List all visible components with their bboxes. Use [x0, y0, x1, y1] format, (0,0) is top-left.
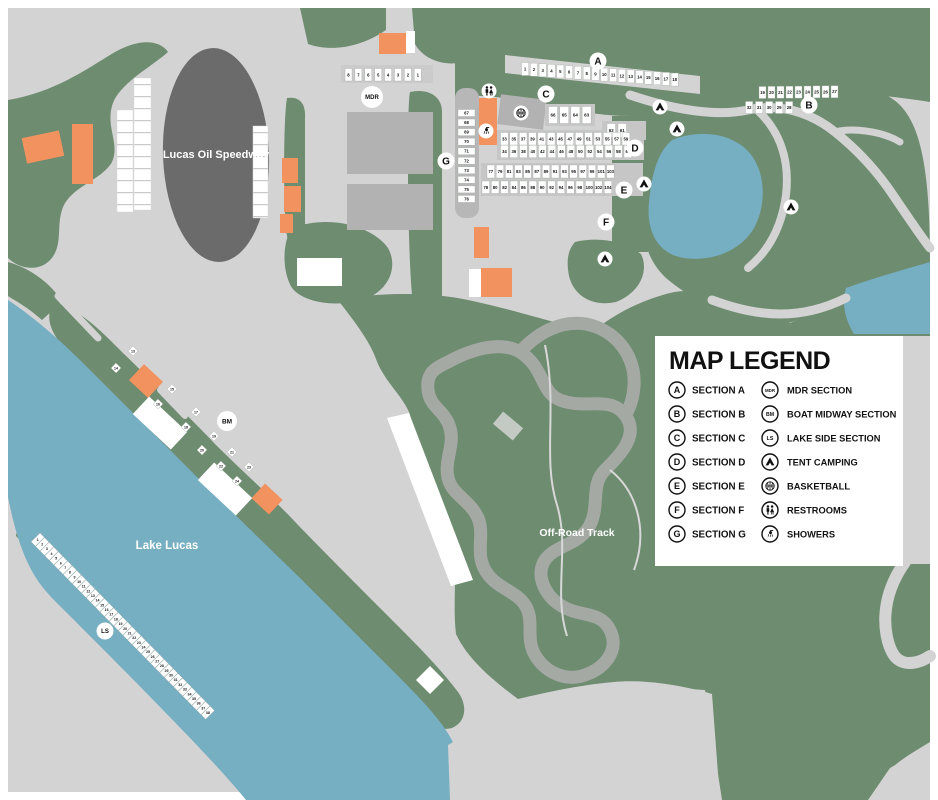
- svg-text:29: 29: [164, 669, 168, 673]
- svg-text:97: 97: [580, 169, 585, 174]
- building-orange-east-1: [282, 158, 298, 183]
- svg-text:19: 19: [760, 90, 765, 95]
- svg-text:24: 24: [805, 90, 810, 95]
- svg-text:7: 7: [64, 566, 66, 570]
- svg-text:4: 4: [51, 552, 53, 556]
- campground-map: 1234567891011121314151617188765432119202…: [0, 0, 938, 800]
- svg-text:13: 13: [131, 349, 135, 353]
- svg-text:13: 13: [628, 74, 633, 79]
- svg-text:50: 50: [578, 149, 583, 154]
- legend-label-restrooms: RESTROOMS: [787, 506, 847, 516]
- legend-label-mdr-section: MDR SECTION: [787, 386, 852, 396]
- map-showers-icon: [479, 124, 494, 139]
- svg-text:17: 17: [664, 76, 669, 81]
- legend-badge-c: C: [674, 433, 681, 443]
- svg-text:64: 64: [573, 113, 579, 118]
- svg-text:12: 12: [86, 589, 90, 593]
- map-tent-icon: [598, 252, 613, 267]
- svg-text:85: 85: [525, 169, 530, 174]
- svg-text:33: 33: [502, 136, 507, 141]
- lot-row-section-b-south: 3231302928: [746, 102, 793, 114]
- svg-text:5: 5: [55, 557, 57, 561]
- svg-text:23: 23: [796, 90, 801, 95]
- svg-text:102: 102: [595, 185, 603, 190]
- svg-text:26: 26: [823, 89, 828, 94]
- svg-text:41: 41: [539, 136, 544, 141]
- svg-text:53: 53: [596, 136, 601, 141]
- building-white-south: [469, 269, 481, 297]
- svg-text:74: 74: [464, 177, 469, 182]
- section-badge-d: D: [627, 140, 644, 157]
- building-gray-mdr-lot-2: [347, 184, 433, 230]
- svg-text:14: 14: [114, 366, 118, 370]
- svg-text:30: 30: [169, 674, 173, 678]
- svg-text:25: 25: [146, 650, 150, 654]
- legend-badge-e: E: [674, 481, 680, 491]
- legend-badge-ls: LS: [767, 436, 774, 442]
- svg-text:103: 103: [607, 169, 615, 174]
- svg-text:56: 56: [607, 149, 612, 154]
- svg-text:98: 98: [577, 185, 582, 190]
- legend-label-tent-camping: TENT CAMPING: [787, 458, 858, 468]
- svg-text:75: 75: [464, 187, 469, 192]
- svg-text:43: 43: [549, 136, 554, 141]
- legend-label-lake-side-section: LAKE SIDE SECTION: [787, 434, 881, 444]
- svg-text:29: 29: [777, 105, 782, 110]
- svg-text:14: 14: [95, 599, 99, 603]
- svg-text:20: 20: [200, 448, 204, 452]
- building-orange-east-2: [284, 186, 301, 212]
- svg-text:68: 68: [464, 120, 469, 125]
- map-legend: MAP LEGEND A SECTION A B SECTION B C SEC…: [655, 336, 903, 566]
- map-tent-icon: [653, 100, 668, 115]
- svg-text:24: 24: [141, 646, 145, 650]
- legend-label-section-b: SECTION B: [692, 410, 745, 421]
- map-restrooms-icon: [482, 84, 497, 99]
- svg-text:12: 12: [620, 73, 625, 78]
- svg-text:19: 19: [118, 622, 122, 626]
- svg-text:15: 15: [646, 75, 651, 80]
- svg-text:94: 94: [559, 185, 564, 190]
- legend-badge-bm: BM: [766, 412, 774, 418]
- svg-text:73: 73: [464, 168, 469, 173]
- svg-text:71: 71: [464, 149, 469, 154]
- svg-text:19: 19: [212, 434, 216, 438]
- svg-text:27: 27: [155, 660, 159, 664]
- speedway-label: Lucas Oil Speedway: [163, 149, 270, 161]
- svg-text:15: 15: [170, 387, 174, 391]
- svg-text:6: 6: [60, 561, 62, 565]
- svg-text:16: 16: [105, 608, 109, 612]
- grandstand-west-inner: [134, 78, 151, 210]
- svg-text:B: B: [805, 101, 812, 112]
- svg-text:54: 54: [597, 149, 602, 154]
- building-orange-west-2: [72, 124, 93, 184]
- svg-text:9: 9: [73, 575, 75, 579]
- section-badge-ls: LS: [97, 623, 114, 640]
- map-tent-icon: [784, 200, 799, 215]
- svg-text:22: 22: [132, 636, 136, 640]
- section-badge-c: C: [538, 86, 555, 103]
- offroad-label: Off-Road Track: [539, 527, 614, 539]
- svg-text:57: 57: [614, 136, 619, 141]
- legend-label-section-e: SECTION E: [692, 482, 745, 493]
- svg-text:70: 70: [464, 139, 469, 144]
- svg-text:28: 28: [787, 105, 792, 110]
- svg-text:39: 39: [530, 136, 535, 141]
- legend-label-section-f: SECTION F: [692, 506, 744, 517]
- svg-text:40: 40: [531, 149, 536, 154]
- svg-text:20: 20: [123, 627, 127, 631]
- svg-text:87: 87: [534, 169, 539, 174]
- svg-text:22: 22: [219, 464, 223, 468]
- legend-label-section-c: SECTION C: [692, 434, 745, 445]
- svg-text:65: 65: [562, 113, 568, 118]
- svg-text:23: 23: [247, 465, 251, 469]
- svg-text:BM: BM: [222, 418, 232, 425]
- map-basketball-icon: [514, 106, 529, 121]
- svg-text:45: 45: [558, 136, 563, 141]
- building-orange-south-1: [474, 227, 489, 258]
- section-badge-f: F: [598, 214, 615, 231]
- svg-text:81: 81: [507, 169, 512, 174]
- svg-text:16: 16: [156, 402, 160, 406]
- svg-text:42: 42: [540, 149, 545, 154]
- building-orange-top: [379, 33, 406, 54]
- svg-text:48: 48: [569, 149, 574, 154]
- svg-text:32: 32: [178, 683, 182, 687]
- svg-text:15: 15: [100, 603, 104, 607]
- legend-title: MAP LEGEND: [669, 347, 830, 375]
- svg-text:82: 82: [502, 185, 507, 190]
- legend-badge-a: A: [674, 385, 681, 395]
- svg-text:17: 17: [194, 410, 198, 414]
- svg-text:14: 14: [637, 75, 642, 80]
- svg-text:44: 44: [550, 149, 555, 154]
- svg-text:F: F: [603, 218, 609, 229]
- map-canvas: 1234567891011121314151617188765432119202…: [0, 0, 938, 800]
- svg-text:G: G: [442, 157, 450, 168]
- svg-text:13: 13: [91, 594, 95, 598]
- svg-text:18: 18: [672, 77, 677, 82]
- svg-text:C: C: [542, 90, 549, 101]
- svg-text:37: 37: [201, 706, 205, 710]
- svg-text:38: 38: [521, 149, 526, 154]
- section-badge-bm: BM: [217, 411, 237, 431]
- svg-text:27: 27: [832, 89, 837, 94]
- svg-text:46: 46: [559, 149, 564, 154]
- svg-text:59: 59: [624, 136, 629, 141]
- svg-text:1: 1: [37, 538, 39, 542]
- svg-text:33: 33: [183, 688, 187, 692]
- legend-badge-mdr: MDR: [765, 388, 776, 393]
- legend-label-section-g: SECTION G: [692, 530, 746, 541]
- building-gray-mdr-lot-1: [347, 112, 433, 174]
- svg-text:84: 84: [512, 185, 517, 190]
- svg-text:21: 21: [128, 631, 132, 635]
- svg-text:24: 24: [235, 479, 239, 483]
- legend-badge-d: D: [674, 457, 681, 467]
- legend-label-showers: SHOWERS: [787, 530, 835, 540]
- svg-text:35: 35: [192, 697, 196, 701]
- svg-text:78: 78: [483, 185, 488, 190]
- legend-label-section-a: SECTION A: [692, 386, 745, 397]
- svg-text:10: 10: [602, 72, 607, 77]
- svg-text:47: 47: [567, 136, 572, 141]
- building-orange-south-2: [481, 268, 512, 297]
- building-white-top: [406, 31, 415, 53]
- svg-text:95: 95: [571, 169, 576, 174]
- svg-text:31: 31: [757, 105, 762, 110]
- svg-text:88: 88: [530, 185, 535, 190]
- svg-text:2: 2: [41, 543, 43, 547]
- svg-text:58: 58: [616, 149, 621, 154]
- svg-text:18: 18: [184, 425, 188, 429]
- svg-text:91: 91: [553, 169, 558, 174]
- legend-badge-f: F: [674, 505, 680, 515]
- svg-text:101: 101: [598, 169, 606, 174]
- section-badge-b: B: [801, 97, 818, 114]
- svg-text:72: 72: [464, 158, 469, 163]
- svg-text:83: 83: [516, 169, 521, 174]
- svg-text:16: 16: [655, 76, 660, 81]
- svg-text:34: 34: [502, 149, 507, 154]
- svg-text:86: 86: [521, 185, 526, 190]
- svg-text:51: 51: [586, 136, 591, 141]
- svg-text:55: 55: [605, 136, 610, 141]
- svg-text:104: 104: [604, 185, 612, 190]
- svg-text:25: 25: [814, 89, 819, 94]
- svg-text:34: 34: [187, 692, 191, 696]
- svg-text:LS: LS: [101, 629, 109, 635]
- grandstand-west-outer: [117, 110, 133, 212]
- svg-text:28: 28: [160, 664, 164, 668]
- svg-text:35: 35: [511, 136, 516, 141]
- svg-text:80: 80: [493, 185, 498, 190]
- svg-text:10: 10: [77, 580, 81, 584]
- svg-text:20: 20: [769, 90, 774, 95]
- svg-text:49: 49: [577, 136, 582, 141]
- svg-text:67: 67: [464, 111, 469, 116]
- building-white-below-speedway: [297, 258, 342, 286]
- section-badge-g: G: [438, 153, 455, 170]
- svg-text:22: 22: [787, 90, 792, 95]
- svg-text:99: 99: [590, 169, 595, 174]
- section-badge-a: A: [590, 53, 607, 70]
- svg-text:76: 76: [464, 196, 469, 201]
- svg-text:89: 89: [544, 169, 549, 174]
- map-tent-icon: [670, 122, 685, 137]
- svg-text:8: 8: [69, 571, 71, 575]
- legend-label-section-d: SECTION D: [692, 458, 745, 469]
- svg-text:52: 52: [588, 149, 593, 154]
- svg-text:79: 79: [498, 169, 503, 174]
- svg-text:26: 26: [151, 655, 155, 659]
- svg-text:A: A: [594, 57, 601, 68]
- svg-text:31: 31: [174, 678, 178, 682]
- svg-text:17: 17: [109, 613, 113, 617]
- svg-text:MDR: MDR: [365, 95, 379, 101]
- svg-text:63: 63: [584, 113, 590, 118]
- svg-text:30: 30: [767, 105, 772, 110]
- map-tent-icon: [637, 177, 652, 192]
- legend-badge-g: G: [673, 529, 680, 539]
- svg-text:3: 3: [46, 547, 48, 551]
- svg-text:93: 93: [562, 169, 567, 174]
- svg-text:32: 32: [747, 105, 752, 110]
- svg-text:E: E: [621, 186, 628, 197]
- svg-text:21: 21: [230, 450, 234, 454]
- svg-text:11: 11: [82, 585, 86, 589]
- lake-label: Lake Lucas: [136, 540, 199, 552]
- svg-text:37: 37: [521, 136, 526, 141]
- svg-text:90: 90: [540, 185, 545, 190]
- section-badge-e: E: [616, 182, 633, 199]
- svg-text:11: 11: [611, 73, 616, 78]
- svg-text:36: 36: [512, 149, 517, 154]
- building-orange-east-3: [280, 214, 293, 233]
- legend-label-boat-midway-section: BOAT MIDWAY SECTION: [787, 410, 897, 420]
- legend-label-basketball: BASKETBALL: [787, 482, 850, 492]
- section-badge-mdr: MDR: [361, 86, 383, 108]
- svg-text:77: 77: [488, 169, 493, 174]
- svg-text:66: 66: [550, 113, 556, 118]
- grandstand-east: [253, 126, 268, 218]
- legend-badge-b: B: [674, 409, 681, 419]
- svg-text:21: 21: [778, 90, 783, 95]
- gray-right-of-legend: [903, 336, 930, 564]
- svg-text:92: 92: [549, 185, 554, 190]
- svg-text:23: 23: [137, 641, 141, 645]
- svg-text:96: 96: [568, 185, 573, 190]
- svg-text:69: 69: [464, 130, 469, 135]
- svg-text:100: 100: [586, 185, 594, 190]
- svg-text:38: 38: [206, 711, 210, 715]
- lot-row-section-b-north: 192021222324252627: [759, 86, 838, 99]
- svg-text:D: D: [631, 144, 638, 155]
- svg-text:36: 36: [197, 702, 201, 706]
- svg-text:18: 18: [114, 617, 118, 621]
